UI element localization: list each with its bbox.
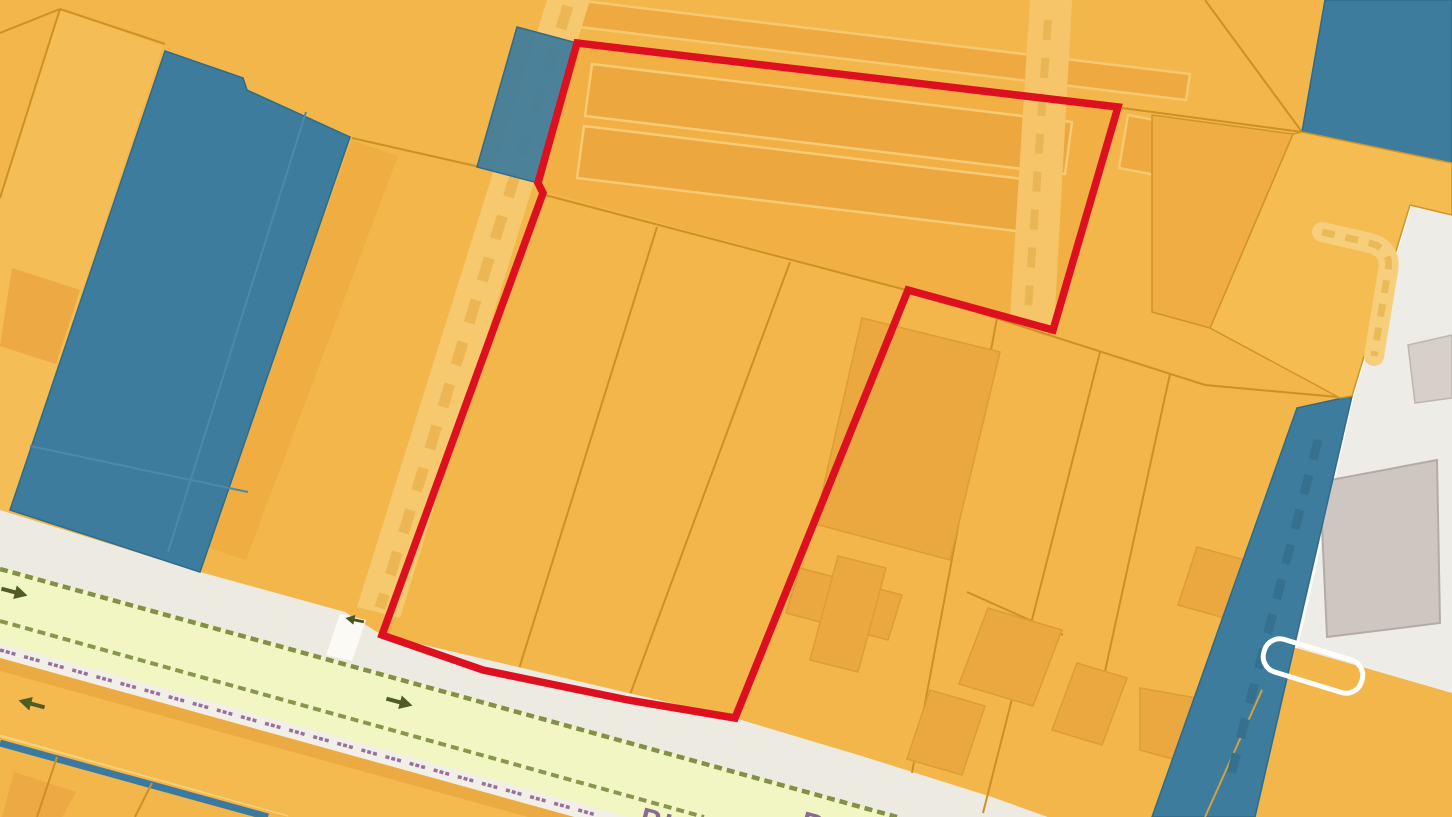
gray-building xyxy=(1408,335,1452,403)
map-viewport[interactable]: PIA R xyxy=(0,0,1452,817)
gray-building xyxy=(1320,460,1440,637)
map-canvas[interactable]: PIA R xyxy=(0,0,1452,817)
